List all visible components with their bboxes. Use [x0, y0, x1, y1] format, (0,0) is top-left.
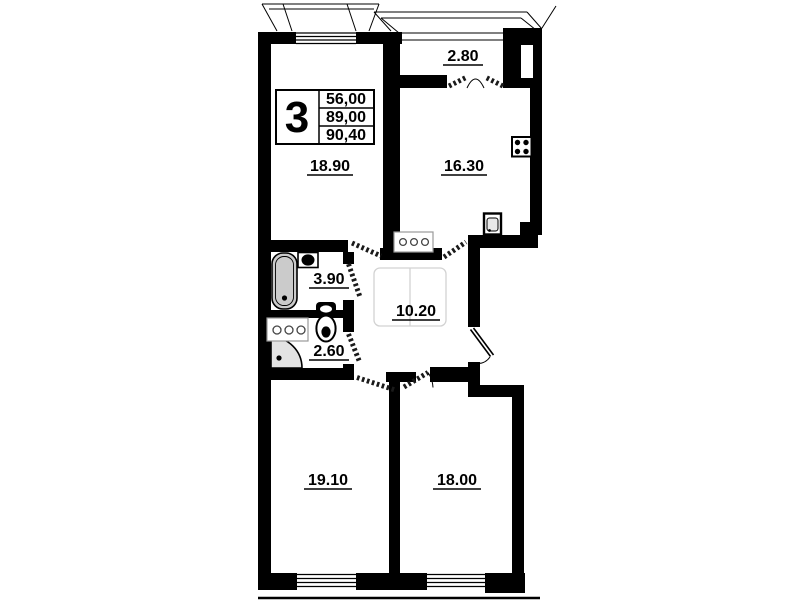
wall-top-left-a [258, 32, 296, 44]
wall-bottom-c [485, 573, 525, 593]
door-wc-leaf [349, 334, 361, 363]
window-bedroom-left [297, 575, 356, 587]
wall-wc-bottom [258, 368, 352, 380]
wall-hall-bedroom-right [430, 367, 468, 382]
label-wc: 2.60 [313, 343, 344, 360]
wall-bedroom-right-side [512, 397, 524, 593]
door-balcony-arc [467, 79, 484, 88]
balcony-railing-left [262, 4, 379, 31]
wall-balcony-divider [400, 75, 447, 88]
entrance-door-leaf [471, 328, 494, 364]
door-kitchen-leaf [444, 242, 466, 257]
label-living-room: 18.90 [310, 158, 350, 175]
label-balcony: 2.80 [447, 48, 478, 65]
apartment-number: 3 [285, 93, 309, 142]
area-row-1: 56,00 [326, 91, 366, 108]
toilet-icon [316, 302, 336, 342]
kitchen-sink-icon [484, 214, 501, 235]
label-hallway: 10.20 [396, 303, 436, 320]
wall-kitchen-right [530, 88, 542, 235]
area-row-2: 89,00 [326, 109, 366, 126]
kitchen-counter-icon [394, 232, 433, 252]
bathtub-icon [272, 253, 297, 309]
duct-notch [521, 45, 533, 78]
wall-kitchen-bottom-right [468, 235, 538, 248]
wall-bedroom-divider [389, 380, 400, 573]
area-row-3: 90,40 [326, 127, 366, 144]
door-balcony-left-leaf [449, 77, 467, 86]
wall-bottom-b [356, 573, 427, 590]
wall-hall-right-upper [468, 248, 480, 327]
floor-plan: 3 56,00 89,00 90,40 18.90 16.30 2.80 3.9… [0, 0, 799, 600]
window-living-top [296, 33, 356, 44]
wall-hall-right-lower [468, 362, 480, 385]
wall-living-bottom [258, 240, 348, 252]
shower-tray-icon [271, 337, 302, 368]
door-living-leaf [352, 243, 381, 256]
wall-bedroom-right-top [468, 385, 524, 397]
window-bedroom-right [427, 575, 485, 587]
wall-bath-right-1 [343, 252, 354, 264]
floor-plan-drawing: 3 56,00 89,00 90,40 18.90 16.30 2.80 3.9… [0, 0, 799, 600]
label-kitchen: 16.30 [444, 158, 484, 175]
wc-counter-icon [267, 318, 308, 341]
washbasin-icon [298, 253, 318, 268]
wall-living-kitchen-divider [383, 32, 400, 260]
label-bedroom-left: 19.10 [308, 472, 348, 489]
apartment-info-table: 3 56,00 89,00 90,40 [276, 90, 374, 144]
wall-bottom-a [258, 573, 297, 590]
wall-bath-right-2 [343, 300, 354, 332]
door-balcony-right-leaf [485, 77, 503, 86]
label-bathroom: 3.90 [313, 271, 344, 288]
wall-kitchen-step [520, 222, 542, 235]
door-bathroom-leaf [349, 264, 361, 297]
label-bedroom-right: 18.00 [437, 472, 477, 489]
stove-icon [512, 137, 532, 157]
